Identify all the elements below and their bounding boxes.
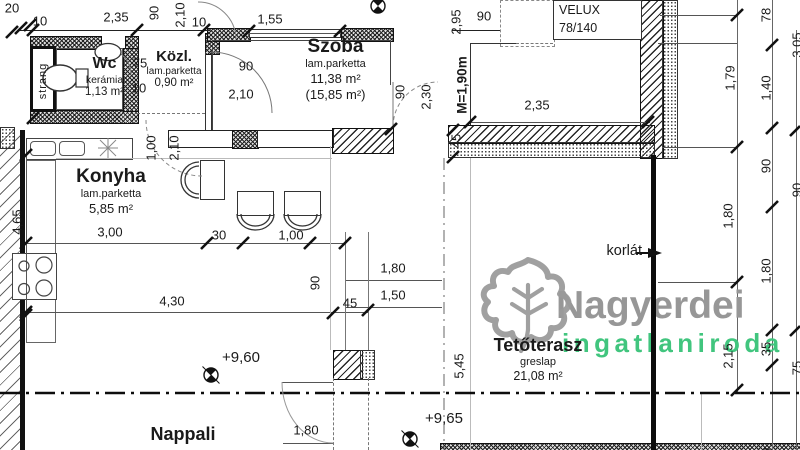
room-szoba-area-alt: (15,85 m²) [283, 87, 388, 102]
room-konyha-name: Konyha [63, 166, 159, 188]
dimension-label: 1,40 [759, 75, 774, 100]
dimension-label: 90 [477, 9, 491, 24]
dim-line-430 [26, 312, 368, 313]
terrace-left-edge [470, 158, 471, 450]
level-label-965: +9,65 [425, 410, 463, 427]
dimension-label: 1,50 [380, 288, 405, 303]
dimension-label: 90 [308, 276, 323, 290]
room-konyha-material: lam.parketta [63, 188, 159, 201]
dimension-label: 90 [239, 59, 253, 74]
parapet-szoba-right [257, 130, 334, 148]
level-marker-965 [397, 426, 424, 450]
dimension-label: 3,00 [97, 225, 122, 240]
dimension-label: 2,95 [449, 9, 464, 34]
pillar-bottom-insulation [360, 350, 375, 380]
dim-chain-outer-right [772, 0, 773, 450]
dimension-label: 2,35 [103, 10, 128, 25]
dim-line-door-bottom [283, 443, 333, 444]
room-tetoterasz-name: Tetőterasz [483, 335, 593, 356]
dining-table-small [200, 160, 225, 200]
dimension-label: 45 [449, 134, 464, 148]
konyha-dining-edge [56, 158, 332, 159]
dimension-label: 90 [759, 159, 774, 173]
dim-line-konyha [26, 243, 345, 244]
dimension-label: 10 [192, 15, 206, 30]
pillar-bottom [333, 350, 363, 380]
level-marker-960 [198, 362, 225, 389]
dim-line-terrace [470, 122, 650, 123]
wall-szoba-terrace-corner [332, 128, 394, 154]
room-tetoterasz-material: greslap [483, 356, 593, 369]
dim-connector [658, 43, 737, 44]
room-konyha: Konyha lam.parketta 5,85 m² [63, 166, 159, 217]
szoba-wall-edge-right [390, 40, 391, 85]
kitchen-sink-left [30, 141, 56, 156]
dimension-label: 90 [790, 183, 800, 197]
dimension-label: 35 [759, 342, 774, 356]
room-szoba-name: Szoba [283, 36, 388, 58]
dim-connector [660, 15, 737, 16]
dimension-label: 1,00 [144, 135, 159, 160]
level-label-960: +9,60 [222, 349, 260, 366]
wall-wc-bottom [30, 110, 139, 124]
room-szoba-material: lam.parketta [283, 58, 388, 71]
room-tetoterasz-area: 21,08 m² [483, 369, 593, 384]
korlat-label: korlát [580, 243, 642, 259]
dimension-label: 4,65 [10, 209, 25, 234]
wall-right-insulation [662, 0, 678, 159]
terrace-parapet-insulation [448, 142, 655, 158]
dimension-label: 2,30 [419, 84, 434, 109]
kitchen-counter-column [26, 160, 56, 343]
dimension-label: 5,45 [452, 353, 467, 378]
dimension-label: 2,10 [173, 2, 188, 27]
kozl-door-opening [137, 113, 205, 114]
dimension-label: 1,80 [759, 258, 774, 283]
dimension-label: 10 [33, 14, 47, 29]
room-konyha-area: 5,85 m² [63, 201, 159, 216]
stove [12, 253, 57, 300]
dimension-label: 2,10 [167, 135, 182, 160]
dimension-label: 30 [212, 228, 226, 243]
wall-right-band [640, 0, 664, 159]
wall-bottom-band [440, 443, 800, 450]
height-marker-label: M=1,90m [455, 56, 470, 113]
level-marker-top [368, 0, 388, 16]
dimension-label: 90 [393, 85, 408, 99]
window-szoba-top-mullion [249, 33, 341, 34]
railing-line [651, 155, 656, 450]
dim-connector [662, 147, 737, 148]
dim-connector [658, 282, 737, 283]
dimension-label: 2,15 [721, 343, 736, 368]
velux-projection-dashed [500, 0, 555, 47]
wall-pillar-szoba-bottom [232, 130, 259, 149]
m-line-vertical [470, 43, 471, 125]
dim-line-window-a [345, 280, 442, 281]
dimension-label: 1,79 [723, 65, 738, 90]
velux-label: VELUX [559, 2, 641, 20]
dimension-label: 1,80 [293, 423, 318, 438]
dimension-label: 10 [132, 81, 146, 96]
dimension-label: 3,05 [790, 32, 800, 57]
room-tetoterasz: Tetőterasz greslap 21,08 m² [483, 335, 593, 384]
dimension-label: 4,30 [159, 294, 184, 309]
pillar-guide-a [345, 232, 346, 350]
velux-roof-window: VELUX 78/140 [553, 0, 642, 40]
dimension-label: 45 [343, 296, 357, 311]
room-szoba-area: 11,38 m² [283, 71, 388, 86]
dimension-label: 2,35 [524, 98, 549, 113]
room-szoba: Szoba lam.parketta 11,38 m² (15,85 m²) [283, 36, 388, 102]
pillar-guide-b [368, 232, 369, 350]
room-nappali-name: Nappali [133, 424, 233, 445]
room-nappali: Nappali [133, 424, 233, 445]
dim-chain-left [26, 150, 27, 315]
dimension-label: 75 [133, 56, 147, 71]
door-projection-b [368, 378, 369, 450]
dimension-label: 75 [790, 361, 800, 375]
brand-subtitle: ingatlaniroda [562, 328, 784, 359]
strang-label: strang [37, 63, 49, 100]
dimension-label: 1,00 [278, 228, 303, 243]
dimension-label: 78 [759, 8, 774, 22]
kitchen-sink-right [59, 141, 85, 156]
dimension-label: 20 [5, 1, 19, 16]
velux-size: 78/140 [559, 20, 641, 38]
konyha-right-edge [330, 146, 331, 350]
dimension-label: 90 [147, 6, 162, 20]
dimension-label: 2,10 [228, 87, 253, 102]
dim-chain-edge-right [796, 30, 797, 450]
dimension-label: 1,80 [380, 261, 405, 276]
dimension-label: 1,55 [257, 12, 282, 27]
dimension-label: 1,80 [721, 203, 736, 228]
dining-table-left [237, 191, 274, 216]
dim-line [20, 30, 210, 31]
door-leaf-bottom [282, 382, 333, 383]
wall-left-insulation-block [0, 127, 15, 149]
floor-plan: VELUX 78/140 Nagyerdei ingatlaniroda [0, 0, 800, 450]
dim-line-window-b [345, 307, 442, 308]
door-projection-a [333, 378, 334, 450]
terrace-bottom-guide [701, 393, 702, 450]
dining-table-right [284, 191, 321, 216]
